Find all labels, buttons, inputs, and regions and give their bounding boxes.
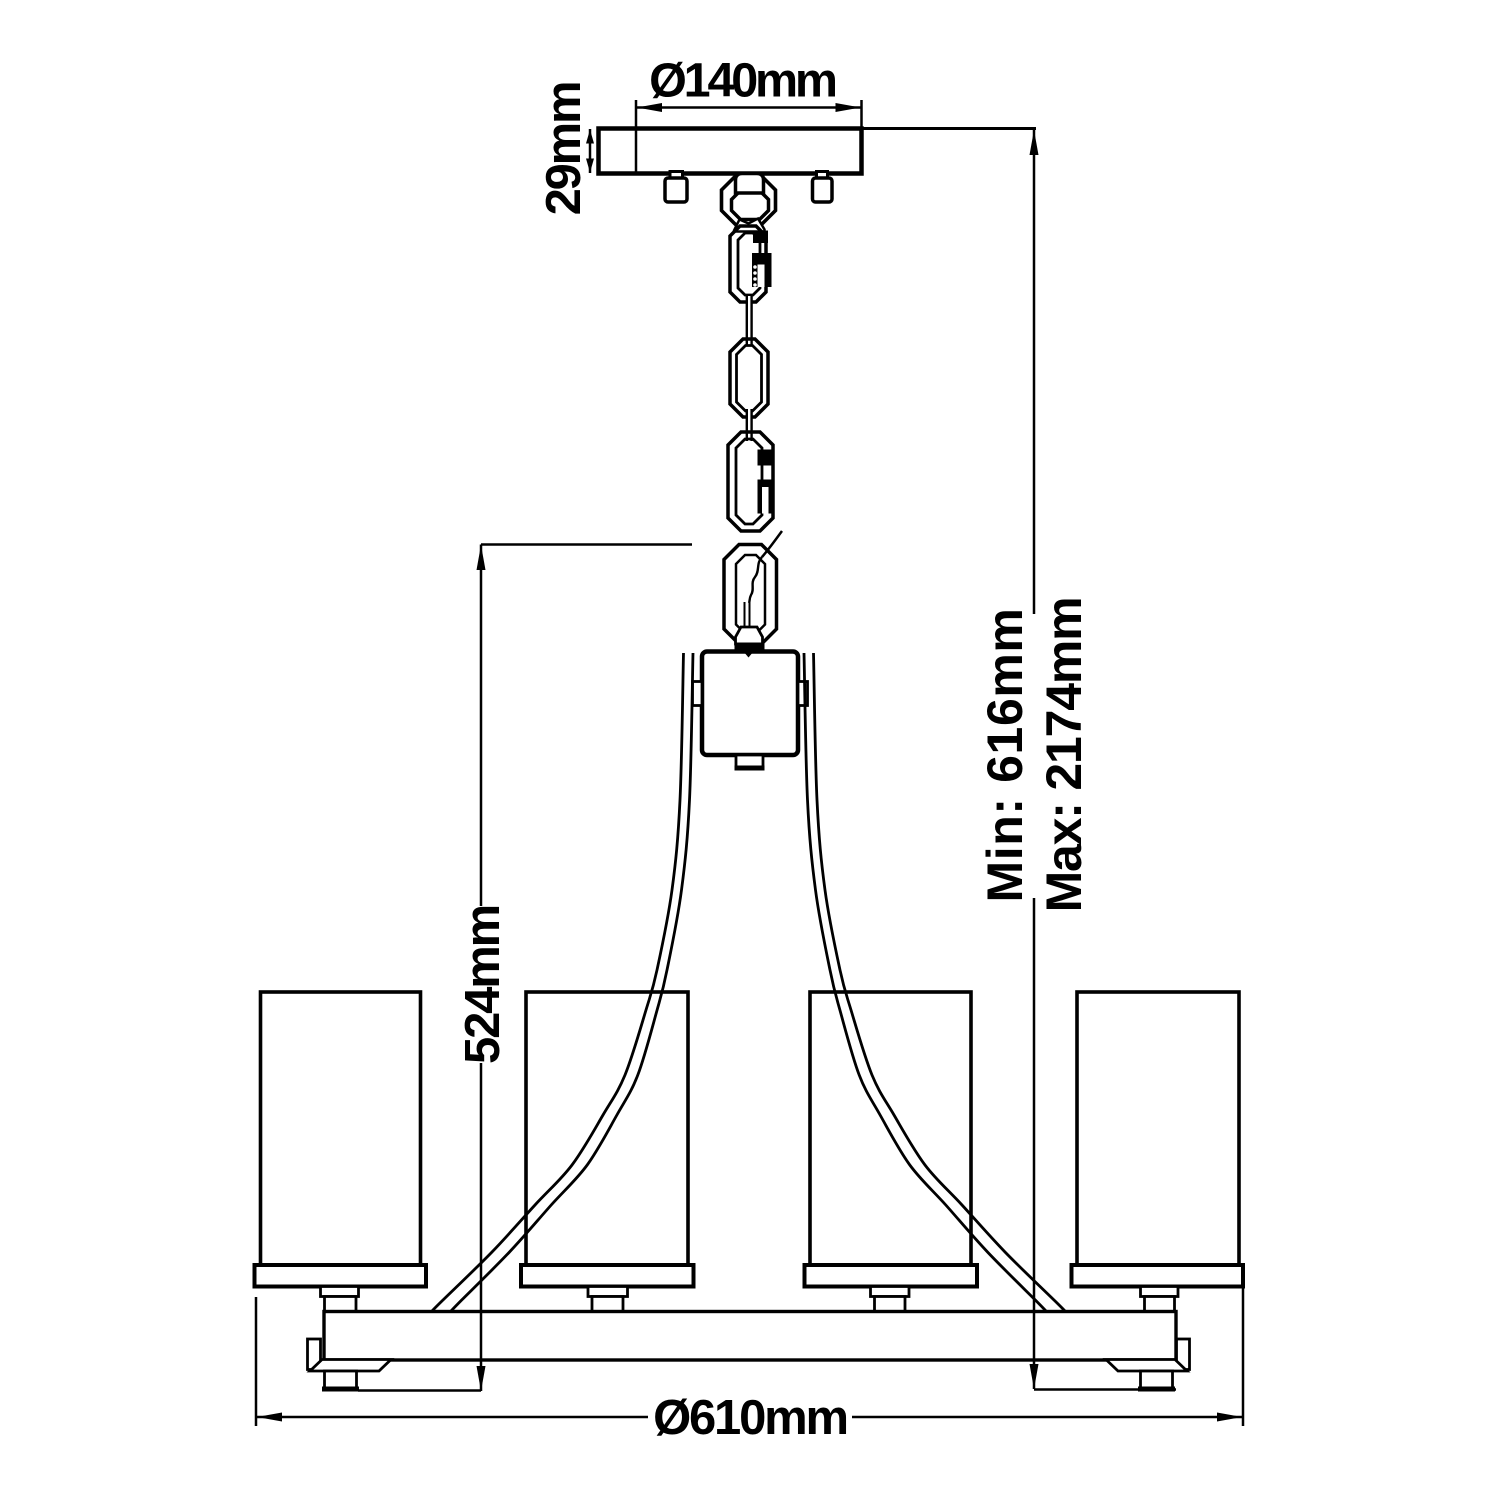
svg-text:Ø610mm: Ø610mm [653,1391,847,1445]
svg-text:524mm: 524mm [456,906,510,1064]
svg-text:Min: 616mm: Min: 616mm [977,608,1033,903]
svg-text:Ø140mm: Ø140mm [649,54,836,108]
svg-text:Max: 2174mm: Max: 2174mm [1036,598,1092,913]
svg-text:29mm: 29mm [537,83,591,216]
